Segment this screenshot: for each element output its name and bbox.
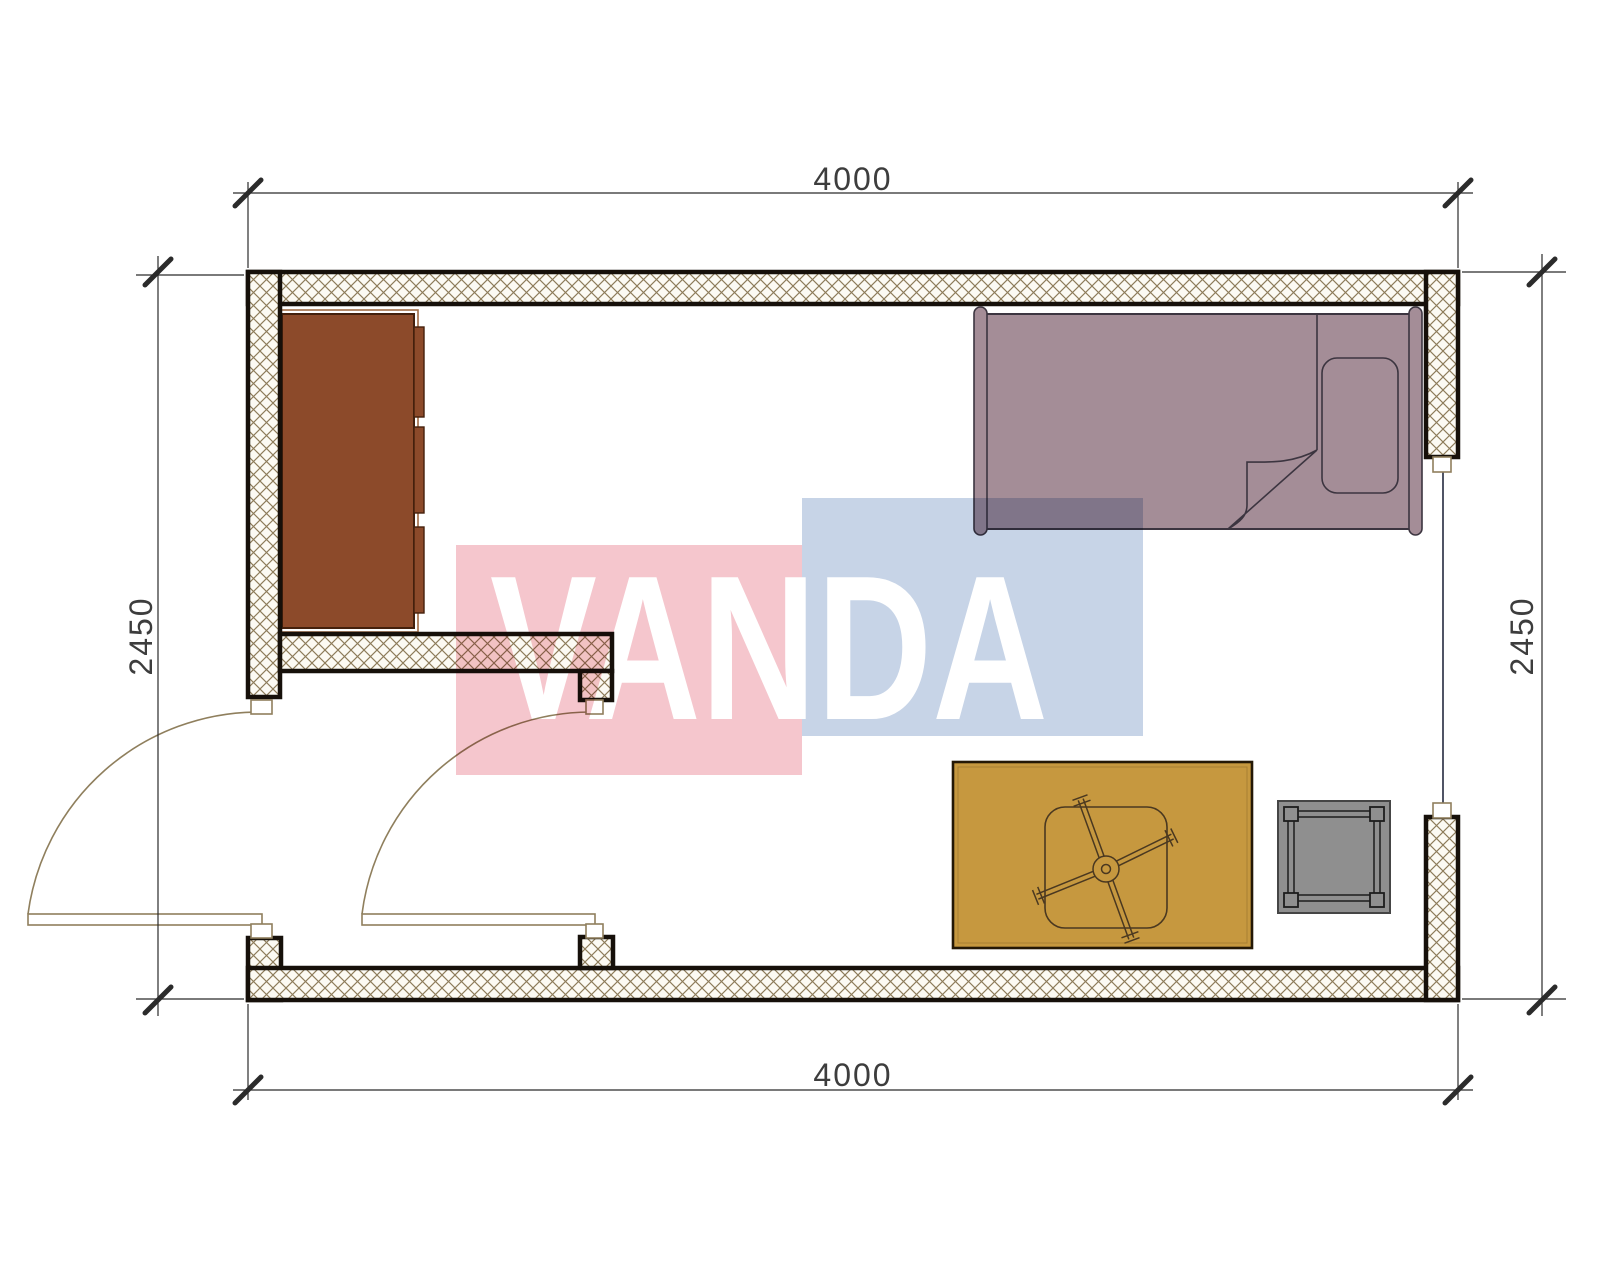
wall-door-stub bbox=[580, 937, 613, 968]
dresser-drawer bbox=[414, 427, 424, 513]
interior-door-leaf bbox=[362, 914, 595, 925]
wall-bottom bbox=[248, 968, 1458, 1000]
interior-door-frame-bottom bbox=[586, 924, 603, 938]
entry-door-frame-top bbox=[251, 700, 272, 714]
entry-door-frame-bottom bbox=[251, 924, 272, 938]
window-frame-bottom bbox=[1433, 803, 1451, 818]
entry-door-arc bbox=[28, 712, 257, 914]
floor-plan-canvas: 4000 4000 2450 2450 VANDA bbox=[0, 0, 1600, 1280]
dimension-left-label: 2450 bbox=[123, 596, 159, 675]
dresser bbox=[278, 310, 424, 632]
wall-right-lower bbox=[1426, 817, 1458, 1000]
dimension-top: 4000 bbox=[233, 161, 1473, 268]
dresser-drawer bbox=[414, 527, 424, 613]
table bbox=[953, 762, 1252, 948]
floor-plan-drawing: 4000 4000 2450 2450 VANDA bbox=[0, 0, 1600, 1280]
dresser-drawer bbox=[414, 327, 424, 417]
entry-door bbox=[28, 700, 272, 938]
dimension-left: 2450 bbox=[123, 256, 244, 1016]
dimension-bottom: 4000 bbox=[233, 1004, 1473, 1103]
stool bbox=[1278, 801, 1390, 913]
watermark: VANDA bbox=[456, 498, 1143, 775]
dimension-right-label: 2450 bbox=[1504, 596, 1540, 675]
bed-footboard bbox=[1409, 307, 1422, 535]
wall-left-upper bbox=[248, 272, 280, 697]
watermark-text: VANDA bbox=[490, 533, 1048, 763]
window-frame-top bbox=[1433, 457, 1451, 472]
dimension-right: 2450 bbox=[1462, 254, 1566, 1016]
wall-top bbox=[248, 272, 1458, 304]
dimension-bottom-label: 4000 bbox=[813, 1057, 892, 1093]
window bbox=[1433, 457, 1451, 818]
wall-right-upper bbox=[1426, 272, 1458, 457]
entry-door-leaf bbox=[28, 914, 262, 925]
dimension-top-label: 4000 bbox=[813, 161, 892, 197]
bed-pillow bbox=[1322, 358, 1398, 493]
